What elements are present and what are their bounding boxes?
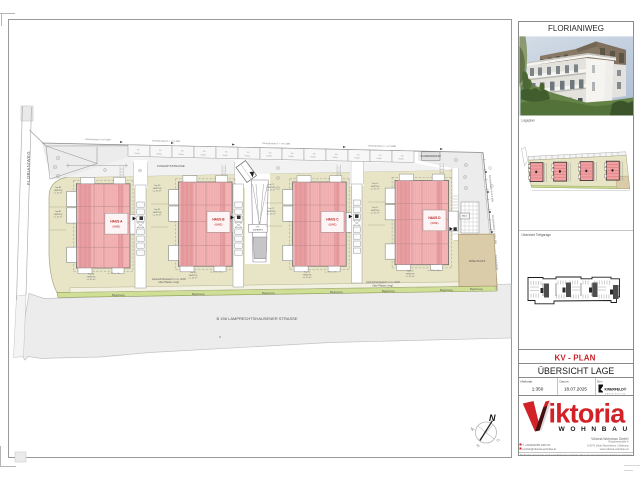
svg-text:Kfz: Kfz (335, 154, 338, 156)
svg-text:Lageplan: Lageplan (522, 118, 535, 122)
svg-text:Begrünung: Begrünung (440, 288, 453, 292)
svg-text:Stellpl.: Stellpl. (179, 153, 185, 156)
svg-text:Datum:: Datum: (560, 380, 570, 384)
svg-text:ca. 45 m²: ca. 45 m² (267, 213, 276, 216)
svg-text:GARTEN: GARTEN (267, 210, 276, 213)
svg-text:Grenzabstand 4 m=3.897: Grenzabstand 4 m=3.897 (85, 138, 112, 142)
svg-text:GARTEN: GARTEN (153, 187, 162, 190)
svg-text:GARTEN: GARTEN (54, 189, 63, 192)
svg-text:Top B1: Top B1 (154, 209, 161, 211)
svg-text:Kfz: Kfz (379, 155, 382, 157)
svg-text:ca. 45 m²: ca. 45 m² (54, 216, 63, 219)
svg-text:Übersicht Tiefgarage: Übersicht Tiefgarage (522, 233, 552, 237)
svg-text:Top A1: Top A1 (55, 210, 62, 213)
svg-text:GARTEN: GARTEN (267, 186, 276, 189)
svg-text:Stellpl.: Stellpl. (355, 157, 361, 160)
svg-text:ÜBERSICHT LAGE: ÜBERSICHT LAGE (538, 366, 615, 376)
svg-text:Stellpl.: Stellpl. (223, 154, 229, 157)
svg-text:N: N (489, 413, 496, 423)
svg-text:Kfz: Kfz (291, 153, 294, 155)
svg-text:Kfz: Kfz (401, 155, 404, 157)
svg-text:Der:: Der: (597, 380, 603, 384)
svg-text:ca. 17,5 x 11m: ca. 17,5 x 11m (428, 270, 441, 272)
svg-text:Top B2: Top B2 (154, 185, 161, 187)
svg-text:B 156 LAMPRECHTSHAUSENER STRAS: B 156 LAMPRECHTSHAUSENER STRASSE (217, 316, 298, 321)
svg-text:ca. 45 m²: ca. 45 m² (153, 214, 162, 217)
svg-text:Stellpl.: Stellpl. (135, 152, 141, 155)
svg-text:ca. 45 m²: ca. 45 m² (267, 189, 276, 192)
svg-text:(6WE): (6WE) (431, 221, 439, 225)
svg-text:Kfz: Kfz (269, 153, 272, 155)
svg-text:ca. 45 m²: ca. 45 m² (189, 277, 198, 280)
svg-text:Stellpl.: Stellpl. (311, 156, 317, 159)
svg-text:Kfz: Kfz (225, 152, 228, 154)
svg-text:Stellpl.: Stellpl. (333, 156, 339, 159)
svg-text:Top D3: Top D3 (407, 271, 414, 273)
svg-text:Begrünung: Begrünung (262, 291, 275, 295)
svg-text:Begrünung: Begrünung (382, 289, 395, 293)
svg-text:(6WE): (6WE) (215, 223, 223, 227)
svg-text:Grenzabstand 4 + m=3.899: Grenzabstand 4 + m=3.899 (368, 145, 397, 149)
svg-text:FAHRRADRAUM: FAHRRADRAUM (421, 154, 441, 158)
svg-text:Stellpl.: Stellpl. (289, 155, 295, 158)
svg-text:Kfz: Kfz (247, 152, 250, 154)
svg-text:WOHNBAU: WOHNBAU (559, 426, 633, 433)
svg-text:über Platzer vergl.: über Platzer vergl. (158, 280, 179, 284)
svg-text:Top D2: Top D2 (372, 183, 379, 185)
svg-text:ca. 45 m²: ca. 45 m² (153, 190, 162, 193)
svg-text:Top A2: Top A2 (55, 186, 62, 189)
svg-text:HAUS B: HAUS B (212, 218, 225, 222)
svg-text:KV - PLAN: KV - PLAN (555, 354, 596, 363)
svg-text:O: O (497, 438, 500, 443)
svg-text:www.viktoria-wohnbau.at: www.viktoria-wohnbau.at (600, 447, 629, 451)
svg-text:GARTEN: GARTEN (371, 209, 380, 212)
svg-text:über Platzer vergl.: über Platzer vergl. (372, 283, 393, 287)
svg-text:ca. 45 m²: ca. 45 m² (54, 192, 63, 195)
svg-text:Kfz: Kfz (159, 150, 162, 152)
svg-text:ca. 45 m²: ca. 45 m² (371, 188, 380, 191)
svg-text:TG: TG (256, 227, 259, 229)
svg-text:GARTEN: GARTEN (153, 211, 162, 214)
svg-text:Top C2: Top C2 (268, 184, 275, 186)
svg-text:Begrünung: Begrünung (330, 290, 343, 294)
svg-text:Top D1: Top D1 (372, 207, 379, 209)
svg-text:GARTEN: GARTEN (189, 274, 198, 277)
svg-text:GARTEN: GARTEN (54, 213, 63, 216)
svg-text:GARTEN: GARTEN (303, 273, 312, 276)
svg-text:Kfz: Kfz (137, 150, 140, 152)
svg-text:Kfz: Kfz (203, 151, 206, 153)
svg-text:FLORIANIWEG: FLORIANIWEG (548, 24, 604, 33)
svg-text:vertrieb@viktoria-wohnbau.at: vertrieb@viktoria-wohnbau.at (522, 447, 556, 451)
svg-text:ca. 17,5 x 11m: ca. 17,5 x 11m (108, 273, 121, 275)
svg-text:HAUS C: HAUS C (326, 218, 339, 222)
svg-text:ca. 45 m²: ca. 45 m² (406, 275, 415, 278)
svg-text:ZUFAHRT: ZUFAHRT (253, 229, 264, 232)
svg-text:Kfz: Kfz (181, 151, 184, 153)
svg-text:1:350: 1:350 (532, 387, 544, 392)
svg-text:ca. 45 m²: ca. 45 m² (303, 276, 312, 279)
svg-text:ZUFAHRTSSTRASSE: ZUFAHRTSSTRASSE (157, 164, 185, 168)
svg-text:Top B3: Top B3 (190, 272, 197, 274)
svg-text:Kfz: Kfz (357, 154, 360, 156)
svg-text:Kfz: Kfz (313, 154, 316, 156)
svg-text:Begrünung: Begrünung (470, 287, 483, 291)
svg-text:18.07.2025: 18.07.2025 (564, 387, 587, 392)
svg-text:iktoria: iktoria (549, 398, 627, 428)
svg-text:Stellpl.: Stellpl. (157, 152, 163, 155)
svg-text:ca. 17,5 x 11m: ca. 17,5 x 11m (325, 272, 338, 274)
svg-text:Top A3: Top A3 (88, 273, 95, 276)
svg-text:Rotacherstraße 4: Rotacherstraße 4 (608, 440, 629, 444)
svg-text:GARTEN: GARTEN (87, 275, 96, 278)
svg-text:Top C1: Top C1 (268, 208, 275, 210)
svg-text:Grenzabstand 1 + m=1.899: Grenzabstand 1 + m=1.899 (152, 140, 181, 144)
svg-text:Begrünung: Begrünung (192, 292, 205, 296)
svg-text:Stellpl.: Stellpl. (245, 154, 251, 157)
svg-text:HAUS A: HAUS A (110, 220, 123, 224)
svg-text:Alle Angaben ohne Gewähr. Irrt: Alle Angaben ohne Gewähr. Irrtümer und Ä… (520, 454, 633, 457)
svg-text:BAUEN FÜR SIE: BAUEN FÜR SIE (605, 393, 626, 396)
svg-text:KWERFELD®: KWERFELD® (605, 387, 627, 391)
svg-text:ca. 17,5 x 11m: ca. 17,5 x 11m (210, 272, 223, 274)
svg-text:Stellpl.: Stellpl. (201, 153, 207, 156)
svg-text:SPIELPLATZ: SPIELPLATZ (469, 259, 486, 263)
svg-text:T +43(0)662/85 1900 00: T +43(0)662/85 1900 00 (522, 443, 550, 447)
svg-text:A-5071 Wals-Siezenheim | Salzb: A-5071 Wals-Siezenheim | Salzburg (587, 443, 629, 447)
svg-text:Top C3: Top C3 (304, 272, 311, 274)
svg-text:(6WE): (6WE) (112, 225, 120, 229)
svg-text:HAUS D: HAUS D (428, 216, 441, 220)
svg-text:GARTEN: GARTEN (406, 272, 415, 275)
svg-text:Begrünung: Begrünung (112, 293, 125, 297)
svg-text:GARTEN: GARTEN (371, 185, 380, 188)
svg-text:Grenzabstand 1 + m=1.899: Grenzabstand 1 + m=1.899 (262, 142, 291, 146)
svg-text:Stellpl.: Stellpl. (267, 155, 273, 158)
svg-text:Stellpl.: Stellpl. (377, 157, 383, 160)
svg-text:ca. 45 m²: ca. 45 m² (87, 278, 96, 281)
svg-text:FLORIANIWEG: FLORIANIWEG (26, 151, 31, 185)
svg-text:Maßstab:: Maßstab: (521, 380, 534, 384)
svg-text:(6WE): (6WE) (329, 223, 337, 227)
svg-text:MÜLL: MÜLL (462, 215, 467, 218)
svg-text:ca. 45 m²: ca. 45 m² (371, 212, 380, 215)
svg-text:Stellpl.: Stellpl. (399, 158, 405, 161)
